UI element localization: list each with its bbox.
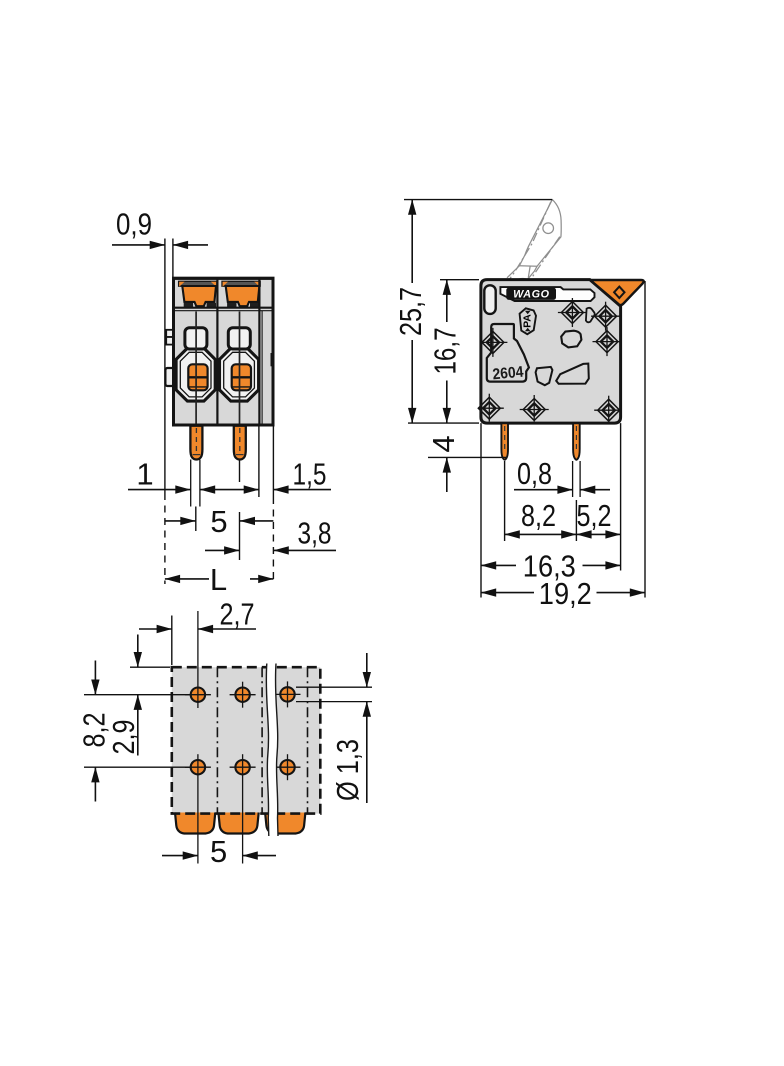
- svg-text:1: 1: [136, 457, 153, 492]
- svg-text:5: 5: [210, 834, 227, 869]
- svg-text:4: 4: [426, 435, 461, 452]
- svg-text:2,9: 2,9: [106, 720, 141, 755]
- svg-text:2,7: 2,7: [220, 597, 255, 632]
- svg-text:1,5: 1,5: [293, 457, 327, 492]
- svg-text:Ø 1,3: Ø 1,3: [330, 739, 365, 801]
- svg-text:25,7: 25,7: [393, 287, 428, 336]
- svg-text:19,2: 19,2: [539, 576, 592, 611]
- svg-text:5,2: 5,2: [577, 498, 612, 533]
- svg-text:3,8: 3,8: [298, 516, 332, 551]
- svg-text:0,9: 0,9: [116, 207, 152, 242]
- svg-text:0,8: 0,8: [517, 456, 552, 491]
- svg-text:5: 5: [210, 504, 227, 539]
- svg-text:2604: 2604: [492, 364, 525, 384]
- svg-text:8,2: 8,2: [521, 498, 556, 533]
- svg-text:PA: PA: [521, 314, 533, 328]
- svg-text:L: L: [210, 562, 227, 597]
- svg-text:WAGO: WAGO: [513, 288, 550, 300]
- svg-text:16,7: 16,7: [428, 328, 463, 375]
